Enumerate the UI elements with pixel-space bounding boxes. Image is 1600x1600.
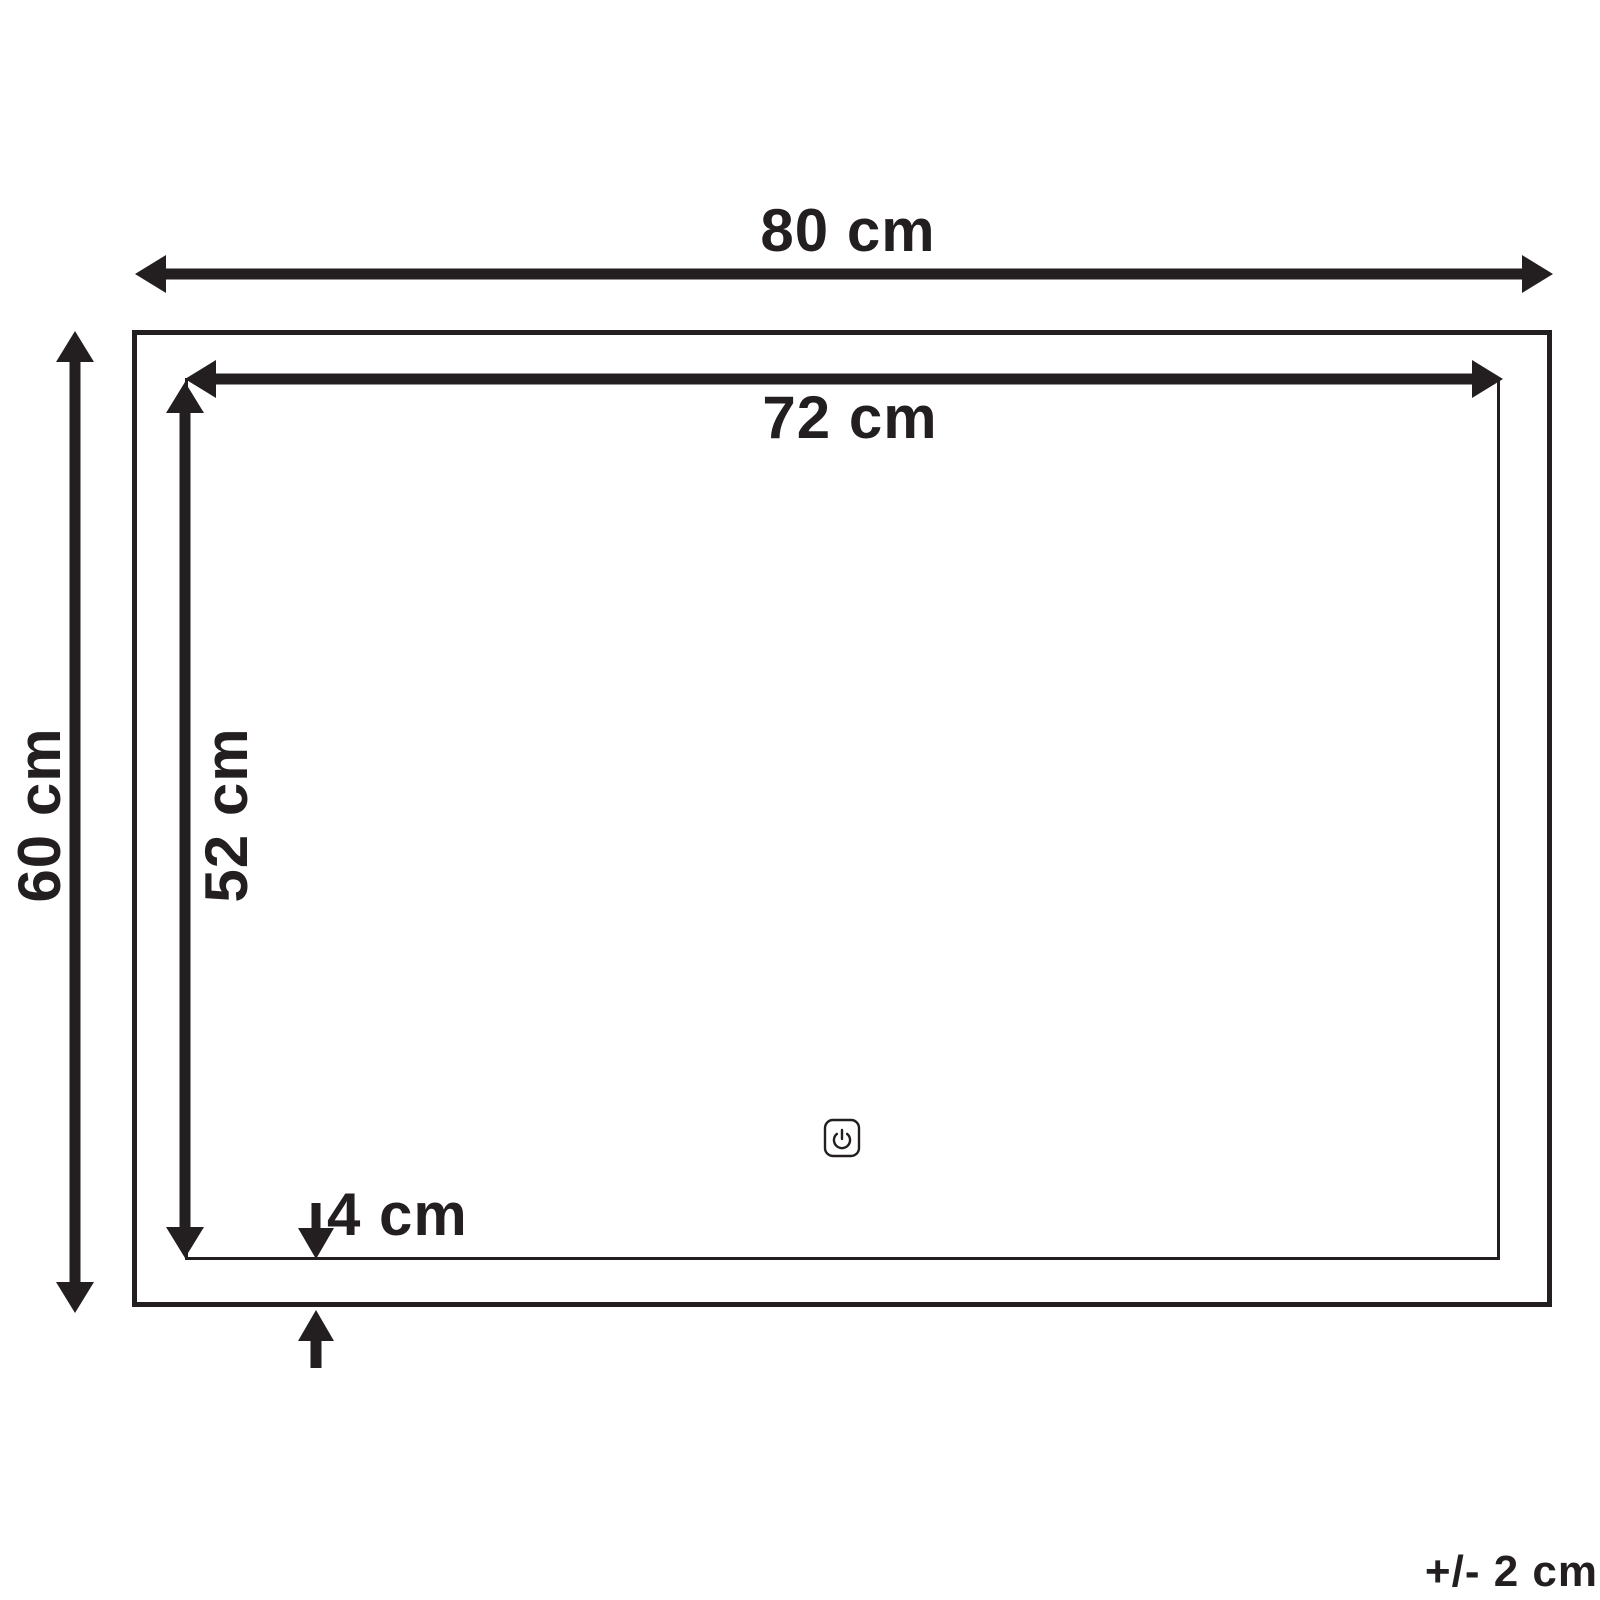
outer-width-label: 80 cm: [698, 199, 998, 263]
outer-height-label: 60 cm: [8, 665, 72, 965]
dimension-diagram: 80 cm 72 cm 60 cm 52 cm 4 cm +/- 2 cm: [0, 0, 1600, 1600]
frame-depth-label: 4 cm: [327, 1183, 468, 1247]
power-icon: [823, 1118, 861, 1158]
inner-width-label: 72 cm: [700, 386, 1000, 450]
inner-height-label: 52 cm: [195, 665, 259, 965]
frame-depth-arrow-up: [298, 1310, 334, 1368]
tolerance-note: +/- 2 cm: [1298, 1548, 1598, 1596]
